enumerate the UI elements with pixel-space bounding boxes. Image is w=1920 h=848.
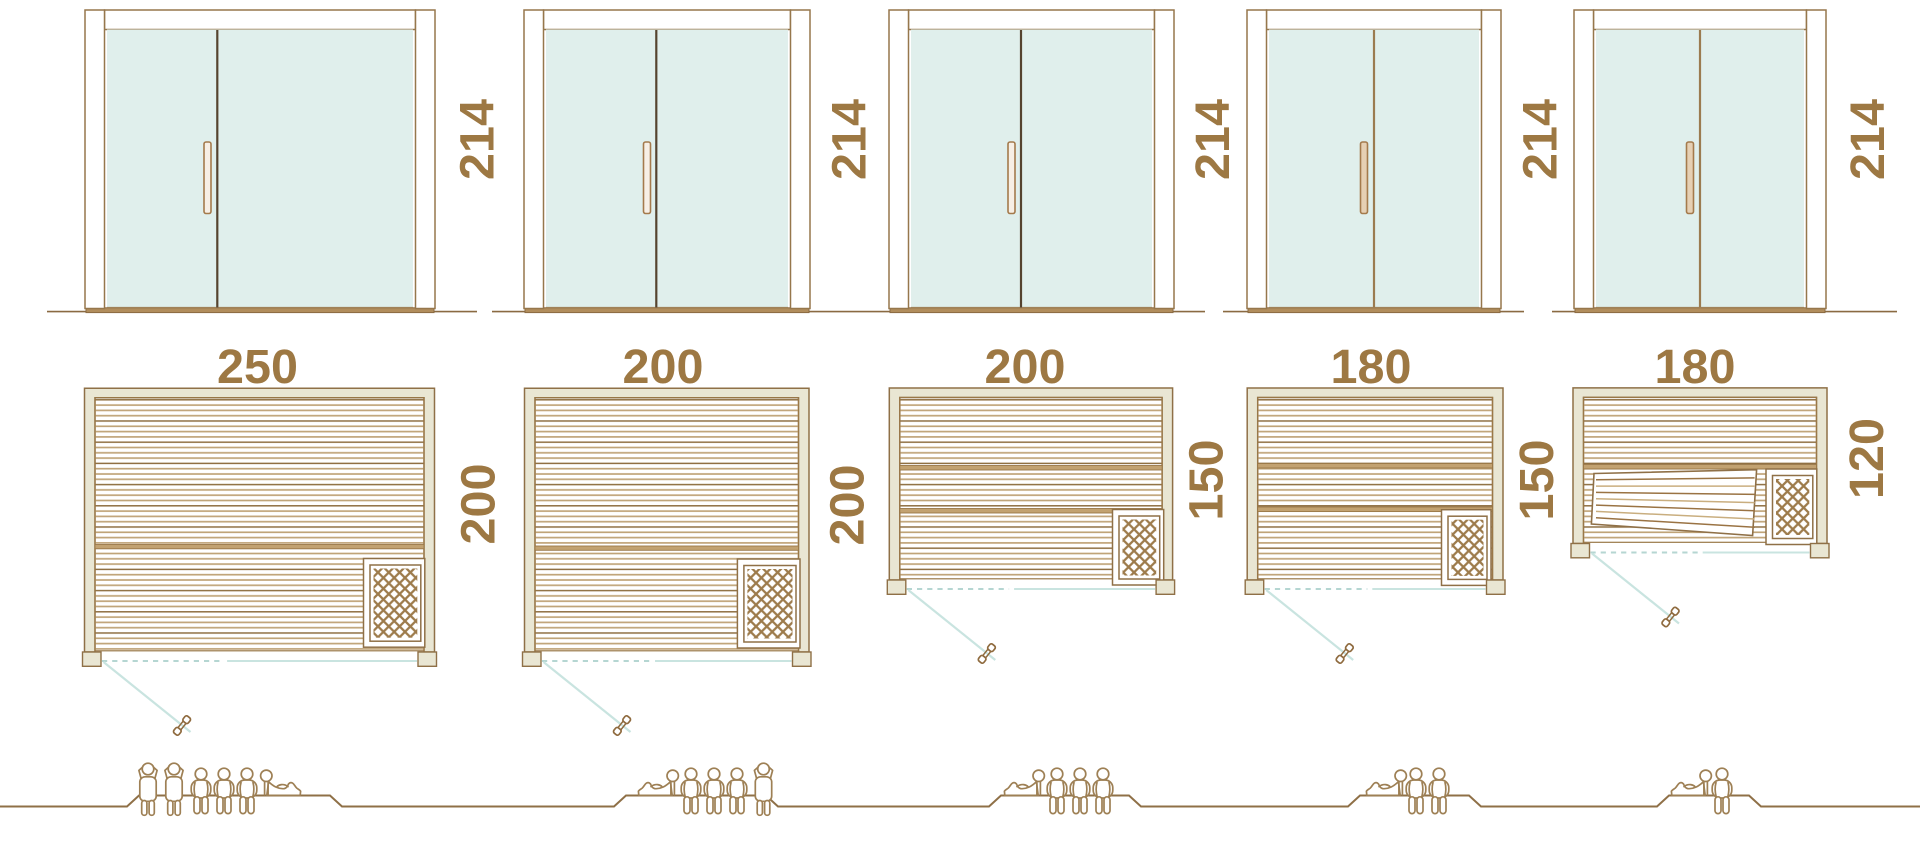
svg-text:250: 250 (217, 340, 298, 394)
svg-text:200: 200 (623, 340, 704, 394)
svg-text:214: 214 (823, 99, 877, 180)
svg-text:120: 120 (1840, 418, 1894, 499)
svg-text:200: 200 (821, 465, 875, 546)
svg-text:214: 214 (451, 99, 505, 180)
svg-text:150: 150 (1180, 440, 1234, 521)
svg-text:214: 214 (1514, 99, 1568, 180)
svg-text:200: 200 (985, 340, 1066, 394)
svg-text:214: 214 (1841, 99, 1895, 180)
svg-text:150: 150 (1510, 440, 1564, 521)
svg-text:200: 200 (452, 464, 506, 545)
svg-text:180: 180 (1655, 340, 1736, 394)
svg-text:180: 180 (1331, 340, 1412, 394)
svg-text:214: 214 (1186, 99, 1240, 180)
